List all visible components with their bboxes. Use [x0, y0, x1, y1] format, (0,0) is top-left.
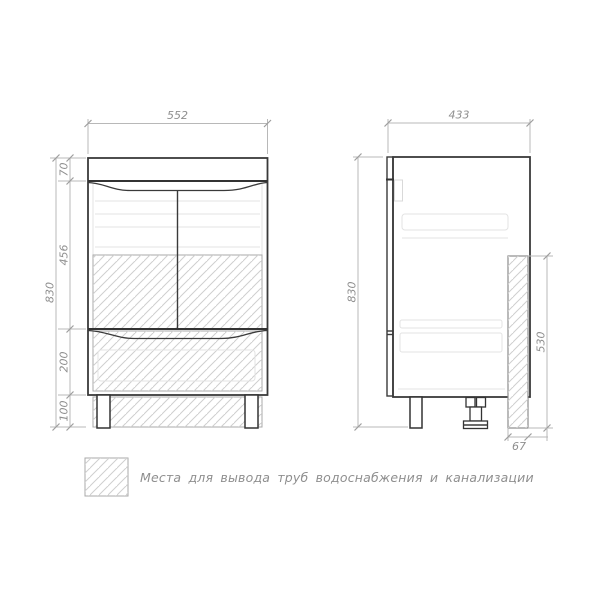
- dim-front-width: 552: [85, 109, 272, 154]
- dim-front-drawer-section-label: 200: [58, 352, 71, 373]
- dim-front-leg-height-label: 100: [58, 401, 71, 422]
- legend: Места для вывода труб водоснабжения и ка…: [85, 458, 534, 496]
- side-front-panel: [386, 157, 394, 396]
- dim-side-pipe-zone-depth: 67: [505, 428, 549, 453]
- dim-side-total-height-label: 830: [346, 282, 359, 303]
- dim-side-depth-label: 433: [449, 109, 470, 122]
- hatch-swatch-fill: [85, 458, 128, 496]
- dim-side-pipe-zone-height-label: 530: [535, 332, 548, 353]
- dim-front-total-height-label: 830: [44, 282, 57, 303]
- vanity-cabinet-drawing: 552 70 456 200 100 830: [0, 0, 600, 600]
- technical-drawing-page: 552 70 456 200 100 830: [0, 0, 600, 600]
- front-pipe-zone-drawer-hatch: [93, 331, 262, 391]
- side-view: [386, 157, 530, 429]
- side-pipe-zone-hatch: [508, 256, 528, 428]
- front-view: [88, 158, 268, 428]
- dim-side-pipe-zone-height: 530: [529, 253, 553, 432]
- dim-front-total-height: 830: [44, 155, 60, 431]
- front-right-leg: [245, 395, 258, 428]
- side-front-leg: [410, 397, 422, 428]
- front-left-leg: [97, 395, 110, 428]
- front-pipe-zone-under-cabinet-hatch: [93, 397, 262, 427]
- dim-front-door-section-label: 456: [58, 245, 71, 266]
- legend-note: Места для вывода труб водоснабжения и ка…: [140, 470, 534, 485]
- dim-front-width-label: 552: [167, 109, 188, 122]
- dim-side-pipe-zone-depth-label: 67: [512, 440, 526, 453]
- dim-side-depth: 433: [385, 109, 534, 154]
- side-adjustable-foot: [464, 398, 488, 429]
- dim-front-top-section-label: 70: [58, 163, 71, 177]
